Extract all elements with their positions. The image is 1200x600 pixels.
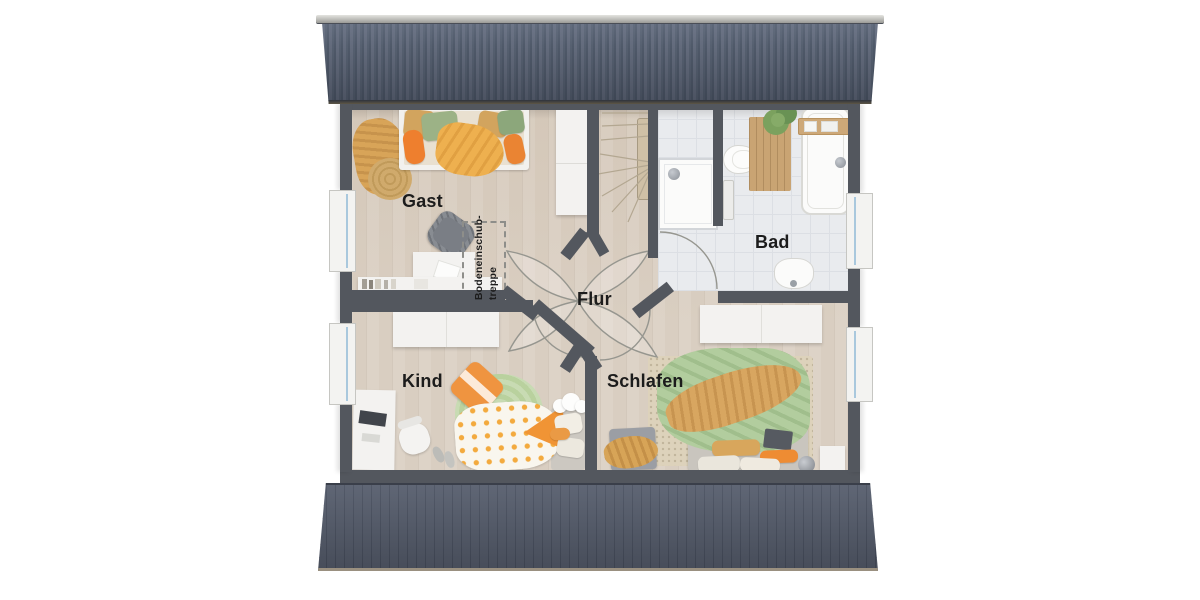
window-schlafen	[846, 327, 873, 402]
attic-hatch-label: Bodeneinschub- treppe	[447, 222, 527, 294]
wall-kind-schlafen	[585, 356, 597, 472]
room-label-kind: Kind	[402, 371, 443, 392]
bad-door-arc	[660, 232, 717, 289]
roof-top	[322, 22, 878, 104]
wall-outer-right	[848, 103, 860, 193]
wall-bad-schlafen	[718, 291, 848, 303]
wall-outer-right	[848, 267, 860, 327]
window-kind	[329, 323, 356, 405]
room-label-schlafen: Schlafen	[607, 371, 684, 392]
wall-outer-left	[340, 270, 352, 323]
room-label-bad: Bad	[755, 232, 790, 253]
wall-shower-left	[648, 103, 658, 258]
window-bad	[846, 193, 873, 269]
wall-outer-left	[340, 103, 352, 190]
window-gast	[329, 190, 356, 272]
roof-ridge	[316, 15, 884, 24]
attic-hatch-label-text: Bodeneinschub- treppe	[473, 215, 500, 300]
wall-kind-top	[352, 300, 533, 312]
roof-bottom	[318, 483, 878, 571]
room-label-gast: Gast	[402, 191, 443, 212]
wall-outer-left	[340, 403, 352, 472]
room-label-flur: Flur	[577, 289, 612, 310]
towel-bar	[723, 180, 734, 220]
wall-outer-right	[848, 400, 860, 472]
floor-plan: Bodeneinschub- treppe	[0, 0, 1200, 600]
wall-shower-right	[713, 103, 723, 226]
wall-gast-stairs	[587, 103, 599, 236]
